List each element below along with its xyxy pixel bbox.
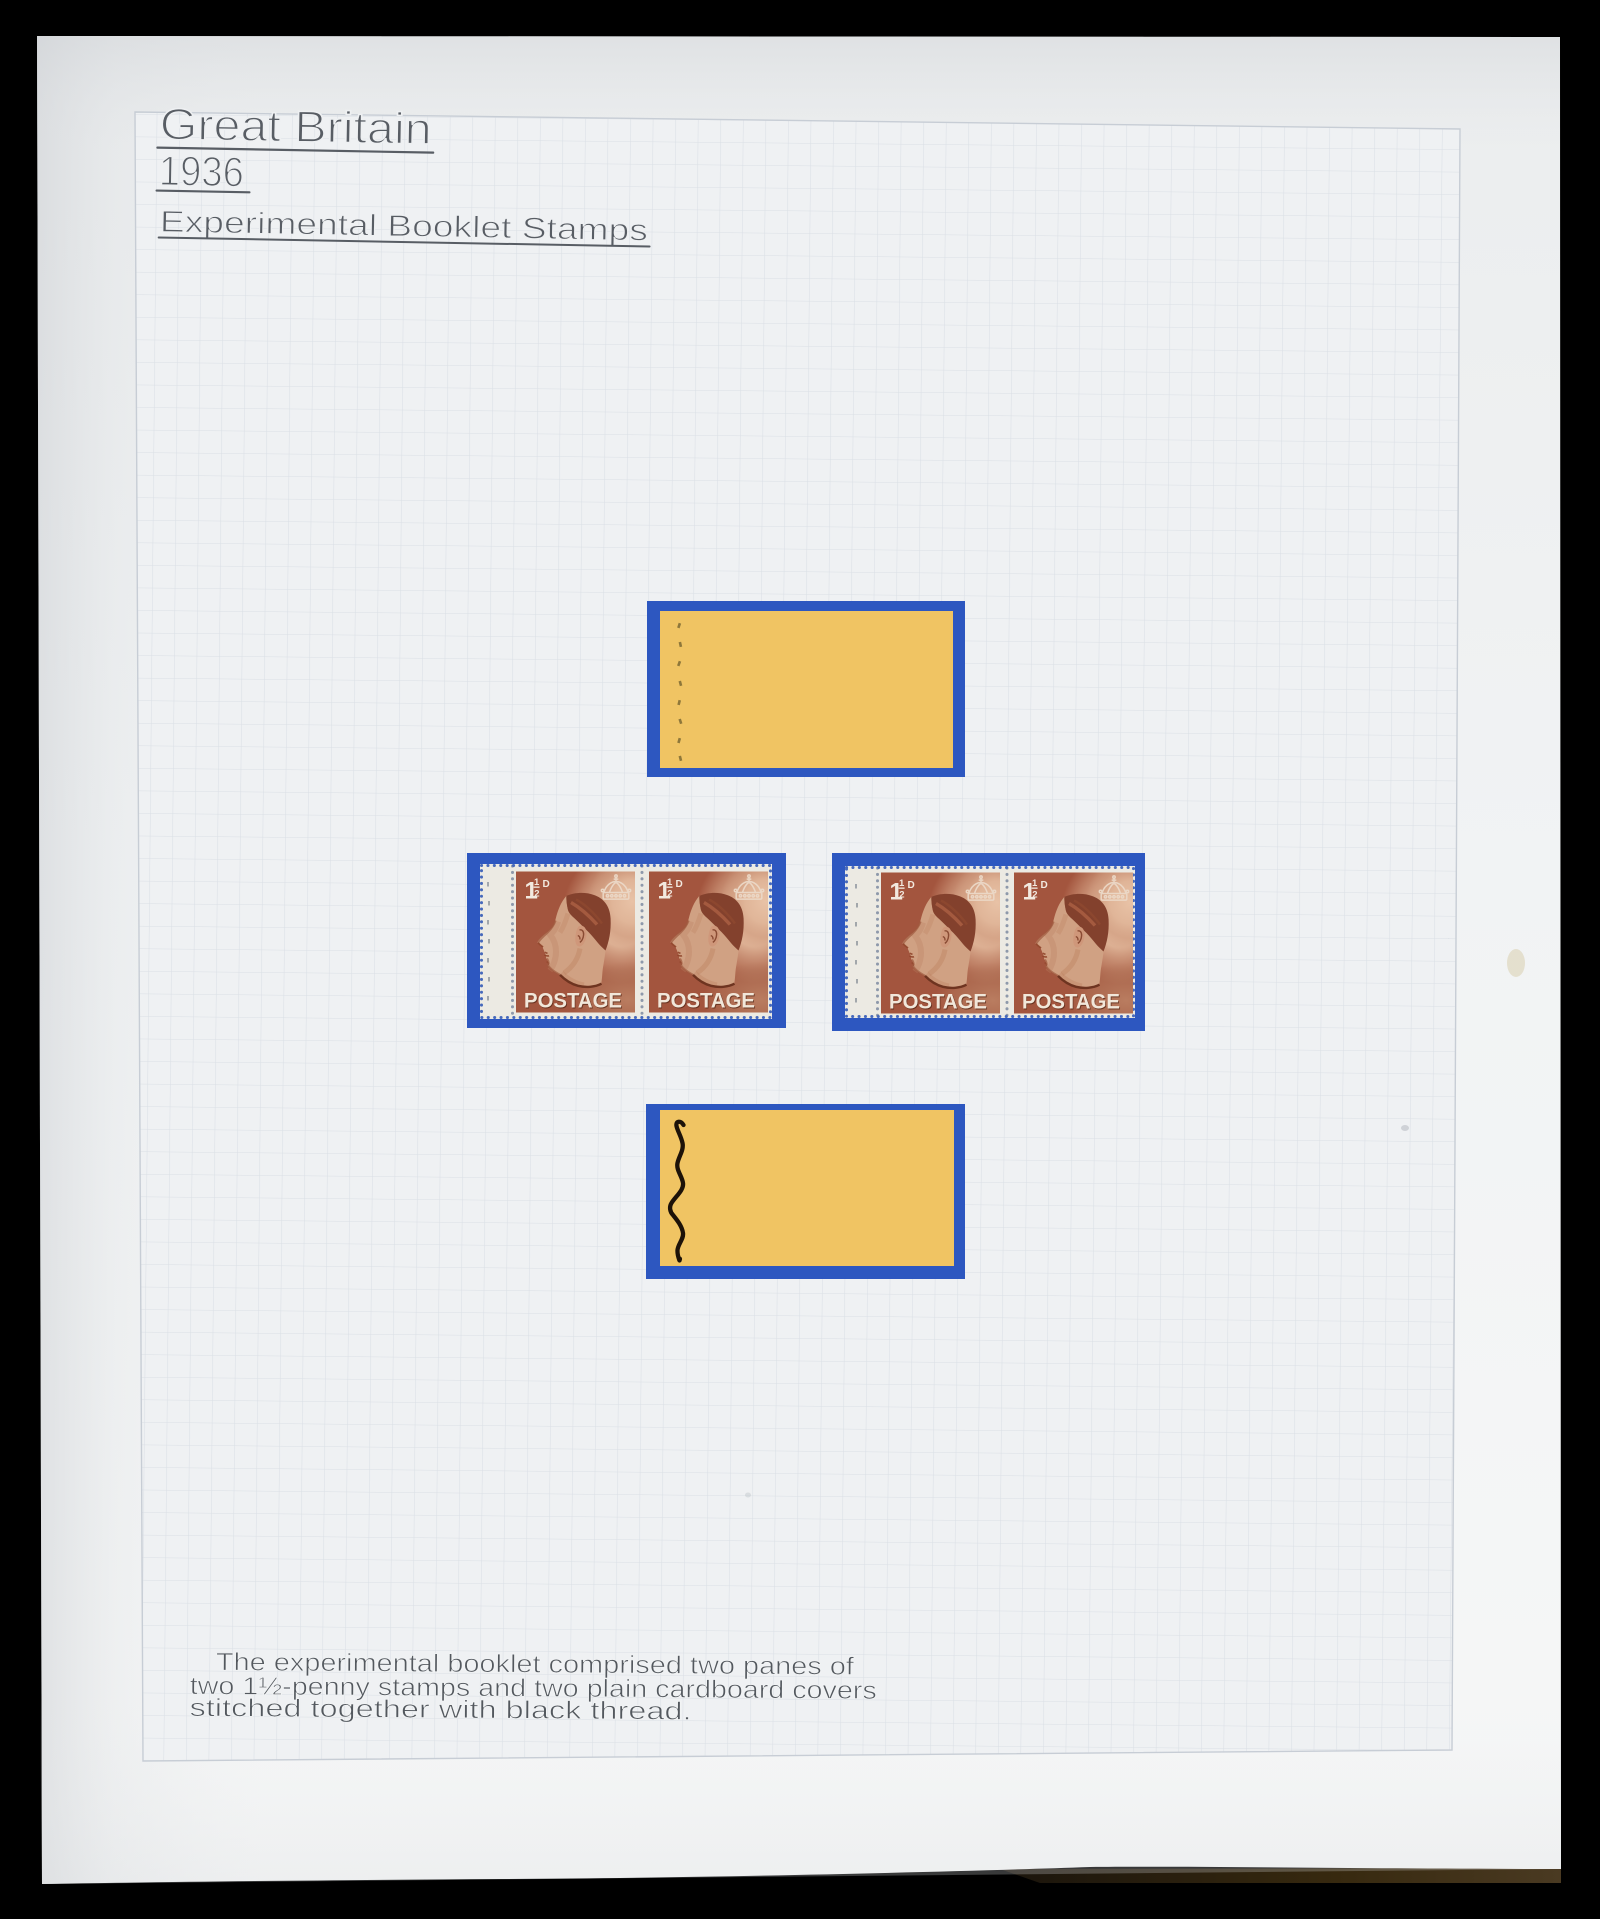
svg-text:stitched together with black t: stitched together with black thread. [189,1694,691,1726]
svg-text:1936: 1936 [158,147,244,196]
svg-text:Great Britain: Great Britain [159,100,432,154]
